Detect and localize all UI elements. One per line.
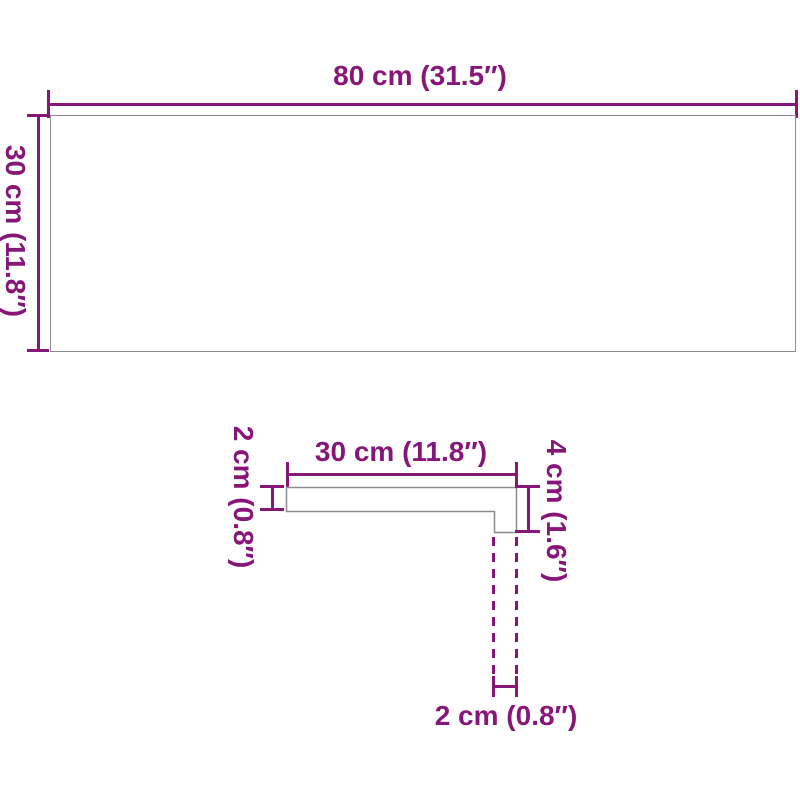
profile-edge-height-label: 4 cm (1.6″) (542, 440, 570, 583)
profile-thickness-top-tick (260, 485, 284, 488)
profile-thickness-label: 2 cm (0.8″) (229, 426, 257, 569)
profile-thickness-bottom-tick (260, 508, 284, 511)
profile-thickness-dimension-line (271, 487, 274, 510)
profile-polygon (287, 488, 517, 533)
profile-edge-height-dimension-line (527, 487, 530, 533)
profile-edge-width-extension-line-right (515, 537, 518, 676)
profile-edge-width-dimension-line (493, 685, 518, 688)
profile-edge-width-label: 2 cm (0.8″) (435, 702, 578, 730)
profile-edge-height-top-tick (515, 485, 540, 488)
profile-edge-height-bottom-tick (515, 530, 540, 533)
board-profile-outline (0, 0, 800, 800)
profile-edge-width-extension-line-left (492, 537, 495, 676)
dimension-diagram: 80 cm (31.5″) 30 cm (11.8″) 30 cm (11.8″… (0, 0, 800, 800)
